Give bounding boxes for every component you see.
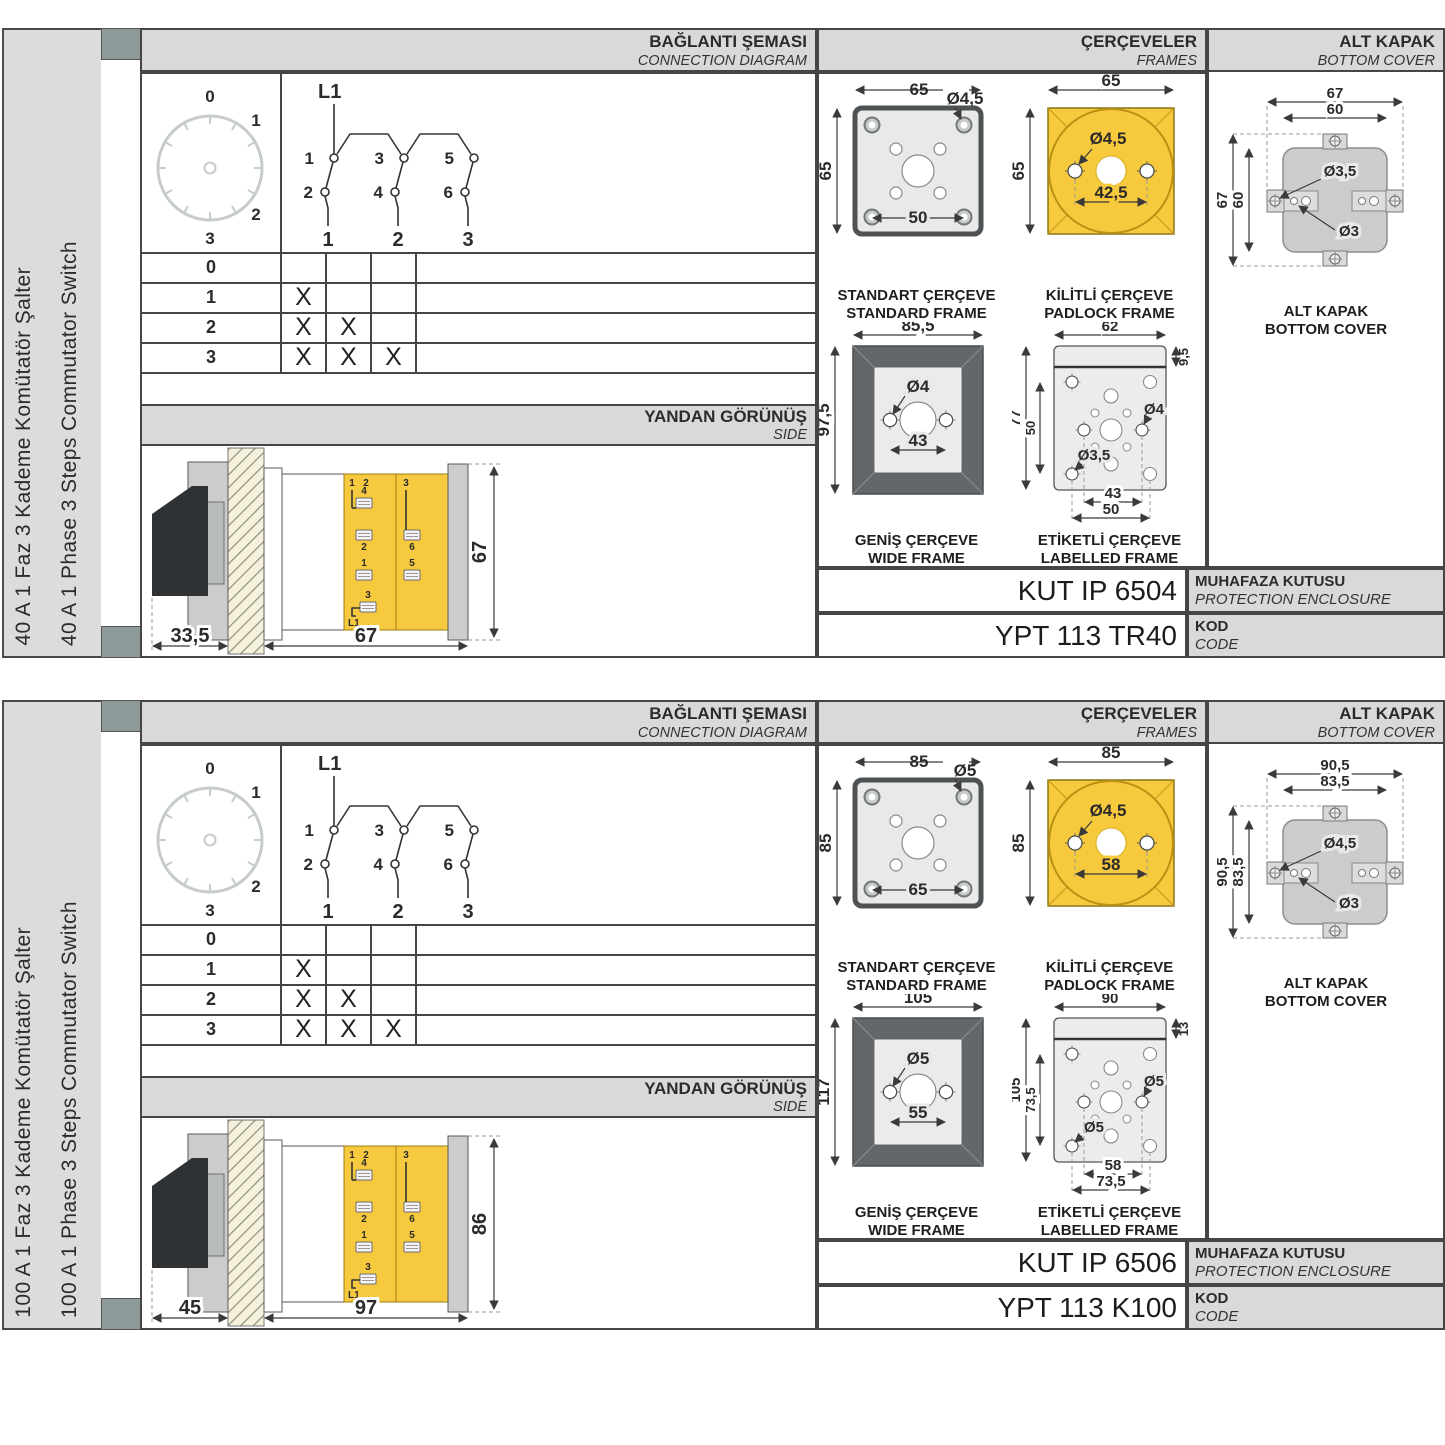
terminal-label: 5 [409,558,415,569]
standard-frame-block: 65 Ø4,5 65 50 STANDART ÇERÇEVE STANDARD … [819,74,1014,322]
panel-main: BAĞLANTI ŞEMASI CONNECTION DIAGRAM ÇERÇE… [140,700,1445,1330]
mark-cell [327,254,372,282]
caption-en: LABELLED FRAME [1012,1222,1207,1240]
truth-table-row: 0 [142,926,815,956]
row-label: 3 [142,1016,282,1044]
body-front [282,1146,344,1302]
dim-hole-span: 50 [909,208,928,227]
standard-frame-caption: STANDART ÇERÇEVE STANDARD FRAME [819,959,1014,995]
truth-table-row: 1 X [142,956,815,986]
panel-main: BAĞLANTI ŞEMASI CONNECTION DIAGRAM ÇERÇE… [140,28,1445,658]
dim-frame-width: 65 [1102,74,1121,90]
code-label-en: CODE [1195,1308,1443,1326]
truth-table-row: 2 X X [142,986,815,1016]
terminal-label: 6 [409,542,415,553]
dial-pos-1: 1 [251,111,260,130]
contact-5: 5 [445,149,454,168]
terminal-label: 3 [365,590,371,601]
terminal-label: 4 [361,1158,367,1169]
bottom-cover-section: 90,5 83,5 90,5 83,5 Ø4,5 Ø3 ALT KAPAK BO… [1207,744,1445,1240]
mark-cell: X [327,344,372,372]
mounting-wall-hatch [228,1120,264,1326]
frames-title: ÇERÇEVELER [819,32,1197,52]
rear-plate [448,1136,468,1312]
connection-title: BAĞLANTI ŞEMASI [142,704,807,724]
padlock-frame-drawing: 85 85 Ø4,5 58 [1012,746,1207,954]
dial-pos-3: 3 [205,229,214,248]
dim-frame-width: 85 [910,752,929,771]
row-label: 2 [142,314,282,342]
mark-cell [282,254,327,282]
mark-cell: X [282,1016,327,1044]
product-title-english: 100 A 1 Phase 3 Steps Commutator Switch [58,901,82,1318]
truth-table-row: 2 X X [142,314,815,344]
caption-tr: STANDART ÇERÇEVE [819,959,1014,977]
dim-hole-dia: Ø4 [907,377,930,396]
dim-cover-width-inner: 60 [1327,101,1344,118]
dim-body-depth: 97 [355,1297,377,1319]
product-code-value: YPT 113 K100 [817,1285,1187,1330]
product-code-label: KOD CODE [1187,1285,1445,1330]
mark-cell [372,284,417,312]
binding-strip [101,28,141,658]
connection-diagram-section: 0 1 2 3 L1 [140,744,817,1330]
standard-frame-drawing: 65 Ø4,5 65 50 [819,74,1014,282]
wide-frame-block: Ø4 43 85,5 97,5 GENİŞ ÇERÇEVE WIDE FRAME [819,322,1014,568]
caption-tr: ALT KAPAK [1209,303,1443,321]
standard-frame-caption: STANDART ÇERÇEVE STANDARD FRAME [819,287,1014,323]
dim-span-outer: 50 [1103,501,1120,518]
caption-en: PADLOCK FRAME [1012,305,1207,323]
mark-cell: X [282,986,327,1014]
dim-hole-dia: Ø5 [954,761,977,780]
output-3: 3 [462,229,473,251]
cover-title: ALT KAPAK [1209,32,1435,52]
padlock-frame-caption: KİLİTLİ ÇERÇEVE PADLOCK FRAME [1012,287,1207,323]
dim-frame-height: 97,5 [819,403,833,436]
frames-section: 85 Ø5 85 65 STANDART ÇERÇEVE STANDARD FR… [817,744,1207,1240]
mark-cell: X [282,344,327,372]
enclosure-code-value: KUT IP 6506 [817,1240,1187,1285]
dial-pos-0: 0 [205,759,214,778]
dim-hole-dia: Ø5 [907,1049,930,1068]
caption-en: STANDARD FRAME [819,305,1014,323]
caption-en: STANDARD FRAME [819,977,1014,995]
standard-frame-drawing: 85 Ø5 85 65 [819,746,1014,954]
caption-en: PADLOCK FRAME [1012,977,1207,995]
section-header-cover: ALT KAPAK BOTTOM COVER [1207,28,1445,72]
dim-tab-hole: Ø4,5 [1324,835,1357,852]
terminal-label: 2 [361,542,367,553]
dim-frame-width: 65 [910,80,929,99]
dial-pos-0: 0 [205,87,214,106]
dim-hole-span: 58 [1102,855,1121,874]
contact-3: 3 [375,821,384,840]
row-label: 3 [142,344,282,372]
terminal-label: 1 [361,558,367,569]
caption-en: WIDE FRAME [819,1222,1014,1240]
section-header-connection: BAĞLANTI ŞEMASI CONNECTION DIAGRAM [140,700,817,744]
side-view-cell: 1 2 3 4 2 6 1 5 3 L1 67 33,5 [142,446,815,661]
dim-hole-left: Ø3,5 [1078,447,1111,464]
mark-cell: X [327,986,372,1014]
contact-1: 1 [305,149,314,168]
switch-schematic-cell: L1 1 3 [282,74,815,254]
dim-tab-hole: Ø3,5 [1324,163,1357,180]
dim-strip-height: 9,5 [1176,348,1191,366]
terminal-label: 1 [361,1230,367,1241]
labelled-frame-caption: ETİKETLİ ÇERÇEVE LABELLED FRAME [1012,532,1207,568]
truth-table-row: 0 [142,254,815,284]
strip-marker-bottom [101,626,141,658]
code-label-tr: KOD [1195,617,1443,636]
caption-tr: ALT KAPAK [1209,975,1443,993]
connection-diagram-section: 0 1 2 3 L1 [140,72,817,658]
side-view-drawing: 1 2 3 4 2 6 1 5 3 L1 86 45 [142,1118,815,1328]
product-title-turkish: 100 A 1 Faz 3 Kademe Komütatör Şalter [12,927,36,1318]
contact-1: 1 [305,821,314,840]
dim-frame-width: 90 [1102,994,1119,1007]
side-view-subtitle: SIDE [142,1099,807,1116]
dim-frame-height: 65 [819,162,835,181]
caption-tr: STANDART ÇERÇEVE [819,287,1014,305]
dial-pos-1: 1 [251,783,260,802]
switch-handle [152,1158,208,1268]
feed-label: L1 [318,753,341,775]
mark-cell: X [327,314,372,342]
dim-handle-depth: 45 [179,1297,201,1319]
padlock-frame-block: 65 65 Ø4,5 42,5 KİLİTLİ ÇERÇEVE PADLOCK … [1012,74,1207,322]
output-2: 2 [392,229,403,251]
labelled-frame-caption: ETİKETLİ ÇERÇEVE LABELLED FRAME [1012,1204,1207,1240]
dim-hole-span: 65 [909,880,928,899]
mark-cell: X [282,314,327,342]
frames-section: 65 Ø4,5 65 50 STANDART ÇERÇEVE STANDARD … [817,72,1207,568]
dim-strip-height: 13 [1176,1022,1191,1036]
switch-handle [152,486,208,596]
row-label: 1 [142,284,282,312]
cover-title: ALT KAPAK [1209,704,1435,724]
output-1: 1 [322,901,333,923]
dim-frame-width: 85 [1102,746,1121,762]
product-title-english: 40 A 1 Phase 3 Steps Commutator Switch [58,241,82,646]
product-code-value: YPT 113 TR40 [817,613,1187,658]
dim-hole-right: Ø4 [1144,401,1165,418]
row-label: 0 [142,254,282,282]
cover-subtitle: BOTTOM COVER [1209,724,1435,742]
section-header-frames: ÇERÇEVELER FRAMES [817,28,1207,72]
cover-caption: ALT KAPAK BOTTOM COVER [1209,303,1443,339]
enclosure-code-label: MUHAFAZA KUTUSU PROTECTION ENCLOSURE [1187,568,1445,613]
switch-schematic-cell: L1 1 3 [282,746,815,926]
mark-cell [327,926,372,954]
mark-cell [372,254,417,282]
bottom-cover-drawing: 90,5 83,5 90,5 83,5 Ø4,5 Ø3 [1209,758,1443,970]
frames-subtitle: FRAMES [819,724,1197,742]
dial-pos-3: 3 [205,901,214,920]
product-sidebar: 40 A 1 Faz 3 Kademe Komütatör Şalter 40 … [2,28,103,658]
truth-table-row: 1 X [142,284,815,314]
dim-body-depth: 67 [355,625,377,647]
mark-cell: X [282,284,327,312]
labelled-frame-block: 62 9,5 77 50 Ø4 Ø3,5 43 [1012,322,1207,568]
dim-inner-hole: Ø3 [1339,895,1359,912]
dim-frame-width: 105 [904,994,932,1007]
standard-frame-block: 85 Ø5 85 65 STANDART ÇERÇEVE STANDARD FR… [819,746,1014,994]
dim-inner-hole: Ø3 [1339,223,1359,240]
enclosure-label-tr: MUHAFAZA KUTUSU [1195,572,1443,591]
caption-tr: ETİKETLİ ÇERÇEVE [1012,1204,1207,1222]
mark-cell: X [372,1016,417,1044]
padlock-frame-drawing: 65 65 Ø4,5 42,5 [1012,74,1207,282]
terminal-label: 4 [361,486,367,497]
product-panel: 100 A 1 Faz 3 Kademe Komütatör Şalter 10… [0,700,1445,1330]
truth-table-row: 3 X X X [142,344,815,374]
side-view-header: YANDAN GÖRÜNÜŞ SIDE [142,1076,815,1118]
side-view-title: YANDAN GÖRÜNÜŞ [142,407,807,427]
switch-schematic: L1 1 3 [282,746,817,924]
enclosure-label-en: PROTECTION ENCLOSURE [1195,1263,1443,1281]
wide-frame-caption: GENİŞ ÇERÇEVE WIDE FRAME [819,1204,1014,1240]
mark-cell [327,956,372,984]
mark-cell [372,986,417,1014]
caption-en: LABELLED FRAME [1012,550,1207,568]
contact-2: 2 [304,183,313,202]
caption-tr: ETİKETLİ ÇERÇEVE [1012,532,1207,550]
cover-subtitle: BOTTOM COVER [1209,52,1435,70]
output-3: 3 [462,901,473,923]
dim-hole-span: 43 [909,431,928,450]
dim-inner-height: 73,5 [1023,1087,1038,1112]
dim-hole-span: 55 [909,1103,928,1122]
feed-label: L1 [318,81,341,103]
dim-hole-left: Ø5 [1084,1119,1104,1136]
contact-4: 4 [374,855,384,874]
labelled-frame-drawing: 90 13 105 73,5 Ø5 Ø5 58 [1012,994,1207,1199]
dim-handle-depth: 33,5 [171,625,210,647]
row-label: 1 [142,956,282,984]
terminal-label: 5 [409,1230,415,1241]
dim-cover-height-inner: 60 [1230,192,1247,209]
contact-6: 6 [444,183,453,202]
enclosure-label-tr: MUHAFAZA KUTUSU [1195,1244,1443,1263]
section-header-cover: ALT KAPAK BOTTOM COVER [1207,700,1445,744]
rotary-dial-diagram: 0 1 2 3 [142,746,280,924]
labelled-frame-drawing: 62 9,5 77 50 Ø4 Ø3,5 43 [1012,322,1207,527]
dim-span-inner: 58 [1105,1157,1122,1174]
caption-en: WIDE FRAME [819,550,1014,568]
frames-title: ÇERÇEVELER [819,704,1197,724]
strip-marker-top [101,28,141,60]
cover-caption: ALT KAPAK BOTTOM COVER [1209,975,1443,1011]
mark-cell: X [327,1016,372,1044]
wide-frame-caption: GENİŞ ÇERÇEVE WIDE FRAME [819,532,1014,568]
mark-cell [372,314,417,342]
padlock-frame-caption: KİLİTLİ ÇERÇEVE PADLOCK FRAME [1012,959,1207,995]
wide-frame-block: Ø5 55 105 117 GENİŞ ÇERÇEVE WIDE FRAME [819,994,1014,1240]
contact-3: 3 [375,149,384,168]
handle-hub [206,1174,224,1256]
dim-cover-height-outer: 90,5 [1214,857,1231,886]
dim-span-inner: 43 [1105,485,1122,502]
dim-hole-span: 42,5 [1094,183,1127,202]
spacer [264,468,282,640]
code-label-tr: KOD [1195,1289,1443,1308]
dial-cell: 0 1 2 3 [142,746,282,926]
caption-en: BOTTOM COVER [1209,993,1443,1011]
row-label: 2 [142,986,282,1014]
dim-frame-width: 62 [1102,322,1119,335]
bottom-cover-section: 67 60 67 60 Ø3,5 Ø3 ALT KAPAK BOTTOM COV… [1207,72,1445,568]
wide-frame-drawing: Ø5 55 105 117 [819,994,1014,1199]
dim-frame-height: 117 [819,1078,833,1105]
connection-subtitle: CONNECTION DIAGRAM [142,52,807,70]
terminal-label: 3 [403,1150,409,1161]
code-label-en: CODE [1195,636,1443,654]
side-view-header: YANDAN GÖRÜNÜŞ SIDE [142,404,815,446]
mark-cell: X [372,344,417,372]
terminal-label: 1 [349,1150,355,1161]
contact-4: 4 [374,183,384,202]
product-sidebar: 100 A 1 Faz 3 Kademe Komütatör Şalter 10… [2,700,103,1330]
connection-subtitle: CONNECTION DIAGRAM [142,724,807,742]
switch-schematic: L1 1 3 [282,74,817,252]
caption-tr: KİLİTLİ ÇERÇEVE [1012,959,1207,977]
body-front [282,474,344,630]
terminal-label: 2 [361,1214,367,1225]
dim-frame-width: 85,5 [901,322,934,335]
terminal-label: 1 [349,478,355,489]
bottom-cover-drawing: 67 60 67 60 Ø3,5 Ø3 [1209,86,1443,298]
terminal-label: 6 [409,1214,415,1225]
dim-inner-height: 50 [1023,421,1038,435]
strip-marker-top [101,700,141,732]
caption-tr: GENİŞ ÇERÇEVE [819,532,1014,550]
enclosure-code-label: MUHAFAZA KUTUSU PROTECTION ENCLOSURE [1187,1240,1445,1285]
mark-cell [372,926,417,954]
row-label: 0 [142,926,282,954]
section-header-connection: BAĞLANTI ŞEMASI CONNECTION DIAGRAM [140,28,817,72]
product-code-label: KOD CODE [1187,613,1445,658]
rear-plate [448,464,468,640]
caption-en: BOTTOM COVER [1209,321,1443,339]
dim-cover-width-outer: 67 [1327,86,1344,102]
dim-side-height: 86 [469,1213,491,1235]
handle-hub [206,502,224,584]
mounting-wall-hatch [228,448,264,654]
datasheet-page: 40 A 1 Faz 3 Kademe Komütatör Şalter 40 … [0,0,1445,1445]
enclosure-code-value: KUT IP 6504 [817,568,1187,613]
mark-cell [372,956,417,984]
side-view-title: YANDAN GÖRÜNÜŞ [142,1079,807,1099]
side-view-drawing: 1 2 3 4 2 6 1 5 3 L1 67 33,5 [142,446,815,656]
section-header-frames: ÇERÇEVELER FRAMES [817,700,1207,744]
dim-cover-width-outer: 90,5 [1320,758,1349,774]
dim-frame-height: 65 [1012,162,1028,181]
output-1: 1 [322,229,333,251]
dim-hole-dia: Ø4,5 [1090,801,1127,820]
dial-pos-2: 2 [251,205,260,224]
contact-2: 2 [304,855,313,874]
side-view-cell: 1 2 3 4 2 6 1 5 3 L1 86 45 [142,1118,815,1333]
dim-frame-height: 85 [819,834,835,853]
caption-tr: KİLİTLİ ÇERÇEVE [1012,287,1207,305]
strip-marker-bottom [101,1298,141,1330]
dim-side-height: 67 [469,541,491,563]
frames-subtitle: FRAMES [819,52,1197,70]
dim-cover-height-inner: 83,5 [1230,857,1247,886]
connection-title: BAĞLANTI ŞEMASI [142,32,807,52]
output-2: 2 [392,901,403,923]
dim-hole-dia: Ø4,5 [1090,129,1127,148]
dial-cell: 0 1 2 3 [142,74,282,254]
enclosure-label-en: PROTECTION ENCLOSURE [1195,591,1443,609]
dim-hole-right: Ø5 [1144,1073,1164,1090]
padlock-frame-block: 85 85 Ø4,5 58 KİLİTLİ ÇERÇEVE PADLOCK FR… [1012,746,1207,994]
dim-span-outer: 73,5 [1096,1173,1125,1190]
terminal-label: 3 [403,478,409,489]
product-panel: 40 A 1 Faz 3 Kademe Komütatör Şalter 40 … [0,28,1445,658]
mark-cell: X [282,956,327,984]
wide-frame-drawing: Ø4 43 85,5 97,5 [819,322,1014,527]
product-title-turkish: 40 A 1 Faz 3 Kademe Komütatör Şalter [12,267,36,646]
dim-cover-width-inner: 83,5 [1320,773,1349,790]
dim-cover-height-outer: 67 [1214,192,1231,209]
dim-frame-height: 85 [1012,834,1028,853]
rotary-dial-diagram: 0 1 2 3 [142,74,280,252]
truth-table-row: 3 X X X [142,1016,815,1046]
mark-cell [327,284,372,312]
labelled-frame-block: 90 13 105 73,5 Ø5 Ø5 58 [1012,994,1207,1240]
caption-tr: GENİŞ ÇERÇEVE [819,1204,1014,1222]
contact-6: 6 [444,855,453,874]
mark-cell [282,926,327,954]
side-view-subtitle: SIDE [142,427,807,444]
contact-5: 5 [445,821,454,840]
dim-hole-dia: Ø4,5 [947,89,984,108]
binding-strip [101,700,141,1330]
spacer [264,1140,282,1312]
terminal-label: 3 [365,1262,371,1273]
dial-pos-2: 2 [251,877,260,896]
